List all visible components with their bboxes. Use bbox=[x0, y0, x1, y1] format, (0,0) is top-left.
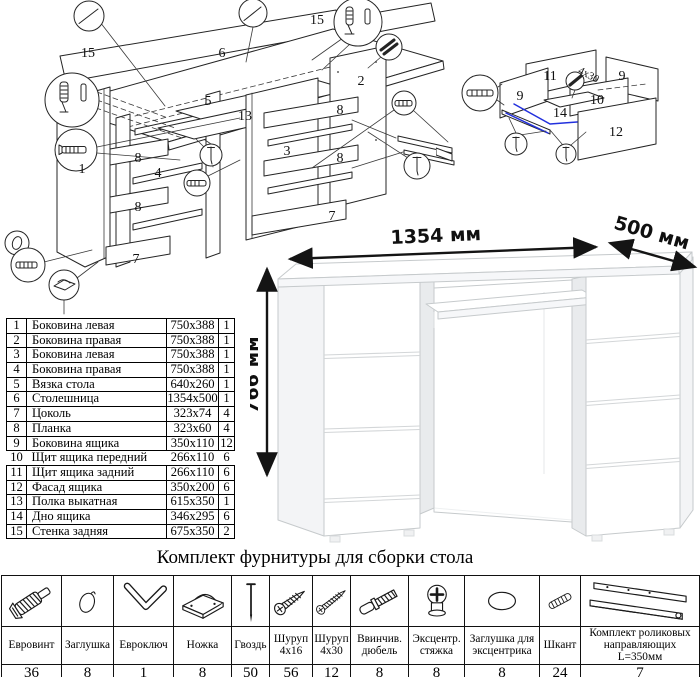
part-qty: 6 bbox=[219, 480, 235, 495]
table-row: 10Щит ящика передний266x1106 bbox=[7, 451, 235, 466]
callout-screw bbox=[505, 133, 527, 155]
table-row: 1Боковина левая750x3881 bbox=[7, 319, 235, 334]
hardware-qty: 8 bbox=[62, 664, 114, 677]
part-size: 323x60 bbox=[167, 421, 219, 436]
part-size: 1354x500 bbox=[167, 392, 219, 407]
part-label-15-right: 15 bbox=[310, 13, 324, 28]
hardware-name: Ножка bbox=[174, 627, 232, 665]
part-name: Полка выкатная bbox=[27, 495, 167, 510]
part-label-8d: 8 bbox=[337, 151, 344, 166]
part-label-6: 6 bbox=[219, 46, 226, 61]
hardware-qty-row: 36 8 1 8 50 56 12 8 8 8 24 7 bbox=[2, 664, 700, 677]
callout-dowel-and-pin bbox=[45, 73, 99, 127]
part-label-5: 5 bbox=[205, 94, 212, 109]
part-size: 640x260 bbox=[167, 377, 219, 392]
part-num: 2 bbox=[7, 333, 27, 348]
part-size: 750x388 bbox=[167, 319, 219, 334]
part-name: Вязка стола bbox=[27, 377, 167, 392]
part-num: 13 bbox=[7, 495, 27, 510]
part-name: Щит ящика задний bbox=[27, 465, 167, 480]
part-qty: 2 bbox=[219, 524, 235, 539]
callout-screw-right bbox=[404, 153, 430, 179]
table-row: 11Щит ящика задний266x1106 bbox=[7, 465, 235, 480]
part-name: Щит ящика передний bbox=[27, 451, 167, 466]
part-num: 14 bbox=[7, 509, 27, 524]
callout-euroscrew-left bbox=[55, 129, 97, 171]
hardware-qty: 8 bbox=[351, 664, 409, 677]
part-num: 11 bbox=[7, 465, 27, 480]
drawer-side-panel-left bbox=[500, 68, 548, 118]
screw-4x16-icon bbox=[270, 577, 312, 625]
part-size: 615x350 bbox=[167, 495, 219, 510]
part-label-10: 10 bbox=[590, 93, 604, 108]
part-qty: 6 bbox=[219, 465, 235, 480]
hardware-qty: 50 bbox=[232, 664, 270, 677]
part-qty: 1 bbox=[219, 392, 235, 407]
cam-cap-icon bbox=[474, 577, 530, 625]
part-size: 750x388 bbox=[167, 363, 219, 378]
part-size: 750x388 bbox=[167, 348, 219, 363]
part-qty: 4 bbox=[219, 407, 235, 422]
callout-cam-screws bbox=[376, 34, 402, 60]
roller-rails-icon bbox=[584, 577, 696, 625]
hardware-name: Заглушка для эксцентрика bbox=[465, 627, 540, 665]
part-num: 4 bbox=[7, 363, 27, 378]
height-label: 766 мм bbox=[250, 336, 263, 413]
screw-in-dowel-icon bbox=[353, 577, 407, 625]
hardware-name: Шуруп 4x30 bbox=[313, 627, 351, 665]
hardware-names-row: Евровинт Заглушка Евроключ Ножка Гвоздь … bbox=[2, 627, 700, 665]
hardware-name: Комплект роликовых направляющих L=350мм bbox=[581, 627, 700, 665]
part-label-1: 1 bbox=[79, 162, 86, 177]
nail-icon bbox=[234, 577, 268, 625]
cam-lock-icon bbox=[412, 577, 462, 625]
part-size: 323x74 bbox=[167, 407, 219, 422]
hex-key-icon bbox=[117, 577, 171, 625]
hardware-qty: 56 bbox=[270, 664, 313, 677]
parts-list-table: 1Боковина левая750x3881 2Боковина правая… bbox=[6, 318, 235, 539]
part-num: 5 bbox=[7, 377, 27, 392]
table-row: 9Боковина ящика350x11012 bbox=[7, 436, 235, 451]
callout-dowel-pin-right bbox=[334, 0, 382, 46]
hardware-name: Эксцентр. стяжка bbox=[409, 627, 465, 665]
hardware-qty: 8 bbox=[465, 664, 540, 677]
depth-label: 500 мм bbox=[611, 212, 691, 254]
part-label-13: 13 bbox=[238, 109, 252, 124]
part-label-14: 14 bbox=[553, 106, 567, 121]
hardware-kit-title: Комплект фурнитуры для сборки стола bbox=[0, 547, 700, 569]
callout-bolt-mid bbox=[200, 144, 222, 166]
part-name: Цоколь bbox=[27, 407, 167, 422]
table-row: 7Цоколь323x744 bbox=[7, 407, 235, 422]
callout-euroscrew-mid bbox=[184, 170, 210, 196]
part-qty: 1 bbox=[219, 348, 235, 363]
table-row: 6Столешница1354x5001 bbox=[7, 392, 235, 407]
part-name: Боковина правая bbox=[27, 333, 167, 348]
hardware-qty: 24 bbox=[540, 664, 581, 677]
hardware-qty: 8 bbox=[174, 664, 232, 677]
hardware-icons-row bbox=[2, 576, 700, 627]
hardware-name: Евроключ bbox=[114, 627, 174, 665]
hardware-name: Ввинчив. дюбель bbox=[351, 627, 409, 665]
table-row: 2Боковина правая750x3881 bbox=[7, 333, 235, 348]
part-qty: 1 bbox=[219, 495, 235, 510]
table-row: 12Фасад ящика350x2006 bbox=[7, 480, 235, 495]
part-name: Фасад ящика bbox=[27, 480, 167, 495]
exploded-view-drawer-diagram: 11 9 9 10 14 12 4x30 bbox=[436, 40, 700, 220]
hardware-name: Гвоздь bbox=[232, 627, 270, 665]
table-row: 13Полка выкатная615x3501 bbox=[7, 495, 235, 510]
part-num: 8 bbox=[7, 421, 27, 436]
hardware-name: Евровинт bbox=[2, 627, 62, 665]
callout-euroscrew-right bbox=[392, 91, 416, 115]
table-row: 4Боковина правая750x3881 bbox=[7, 363, 235, 378]
part-num: 1 bbox=[7, 319, 27, 334]
table-row: 14Дно ящика346x2956 bbox=[7, 509, 235, 524]
part-label-2: 2 bbox=[358, 74, 365, 89]
callout-screw-top-mid bbox=[239, 0, 267, 27]
part-num: 3 bbox=[7, 348, 27, 363]
part-label-12: 12 bbox=[609, 125, 623, 140]
screw-4x30-icon bbox=[313, 577, 351, 625]
width-label: 1354 мм bbox=[390, 223, 481, 249]
part-size: 266x110 bbox=[167, 451, 219, 466]
right-pedestal bbox=[586, 257, 693, 541]
hardware-qty: 12 bbox=[313, 664, 351, 677]
desk-render: 1354 мм 500 мм 766 мм bbox=[250, 212, 700, 552]
callout-nail bbox=[556, 144, 576, 164]
desk-body bbox=[278, 252, 693, 542]
cap-icon bbox=[65, 577, 111, 625]
part-label-3: 3 bbox=[284, 144, 291, 159]
table-row: 3Боковина левая750x3881 bbox=[7, 348, 235, 363]
callout-foot bbox=[49, 270, 79, 300]
part-size: 266x110 bbox=[167, 465, 219, 480]
part-num: 12 bbox=[7, 480, 27, 495]
euro-screw-icon bbox=[5, 577, 59, 625]
part-qty: 1 bbox=[219, 363, 235, 378]
part-qty: 1 bbox=[219, 377, 235, 392]
part-qty: 6 bbox=[219, 509, 235, 524]
callout-rail bbox=[462, 75, 498, 111]
part-name: Боковина правая bbox=[27, 363, 167, 378]
part-num: 6 bbox=[7, 392, 27, 407]
callout-screw-top-left bbox=[74, 1, 104, 31]
part-label-4: 4 bbox=[155, 166, 162, 181]
table-row: 8Планка323x604 bbox=[7, 421, 235, 436]
hardware-qty: 36 bbox=[2, 664, 62, 677]
part-name: Столешница bbox=[27, 392, 167, 407]
part-size: 350x110 bbox=[167, 436, 219, 451]
part-size: 350x200 bbox=[167, 480, 219, 495]
part-qty: 1 bbox=[219, 319, 235, 334]
hardware-qty: 7 bbox=[581, 664, 700, 677]
part-num: 9 bbox=[7, 436, 27, 451]
foot-icon bbox=[176, 577, 230, 625]
hardware-kit-table: Евровинт Заглушка Евроключ Ножка Гвоздь … bbox=[1, 575, 700, 677]
hardware-name: Шуруп 4x16 bbox=[270, 627, 313, 665]
part-name: Боковина левая bbox=[27, 348, 167, 363]
table-row: 15Стенка задняя675x3502 bbox=[7, 524, 235, 539]
hardware-name: Заглушка bbox=[62, 627, 114, 665]
part-qty: 1 bbox=[219, 333, 235, 348]
part-label-11: 11 bbox=[543, 69, 556, 84]
wood-dowel-icon bbox=[540, 577, 580, 625]
part-size: 750x388 bbox=[167, 333, 219, 348]
part-name: Боковина ящика bbox=[27, 436, 167, 451]
part-qty: 4 bbox=[219, 421, 235, 436]
hardware-qty: 8 bbox=[409, 664, 465, 677]
part-qty: 12 bbox=[219, 436, 235, 451]
part-num: 7 bbox=[7, 407, 27, 422]
part-label-9-right: 9 bbox=[619, 69, 626, 84]
hardware-qty: 1 bbox=[114, 664, 174, 677]
part-size: 675x350 bbox=[167, 524, 219, 539]
part-num: 15 bbox=[7, 524, 27, 539]
part-label-8c: 8 bbox=[337, 103, 344, 118]
part-label-9-left: 9 bbox=[517, 89, 524, 104]
part-size: 346x295 bbox=[167, 509, 219, 524]
callout-euroscrew-bottom bbox=[11, 248, 45, 282]
part-qty: 6 bbox=[219, 451, 235, 466]
part-label-8b: 8 bbox=[135, 200, 142, 215]
part-label-8a: 8 bbox=[135, 151, 142, 166]
hardware-name: Шкант bbox=[540, 627, 581, 665]
part-num: 10 bbox=[7, 451, 27, 466]
part-name: Боковина левая bbox=[27, 319, 167, 334]
left-pedestal bbox=[278, 282, 420, 542]
part-name: Дно ящика bbox=[27, 509, 167, 524]
desk-assembly-instruction-sheet: 15 15 6 1 5 13 8 4 8 7 3 2 8 8 7 bbox=[0, 0, 700, 677]
part-name: Стенка задняя bbox=[27, 524, 167, 539]
dimension-height: 766 мм bbox=[250, 269, 267, 475]
part-name: Планка bbox=[27, 421, 167, 436]
table-row: 5Вязка стола640x2601 bbox=[7, 377, 235, 392]
dimension-width: 1354 мм bbox=[290, 223, 596, 259]
part-label-7a: 7 bbox=[133, 252, 140, 267]
part-label-15-left: 15 bbox=[81, 46, 95, 61]
